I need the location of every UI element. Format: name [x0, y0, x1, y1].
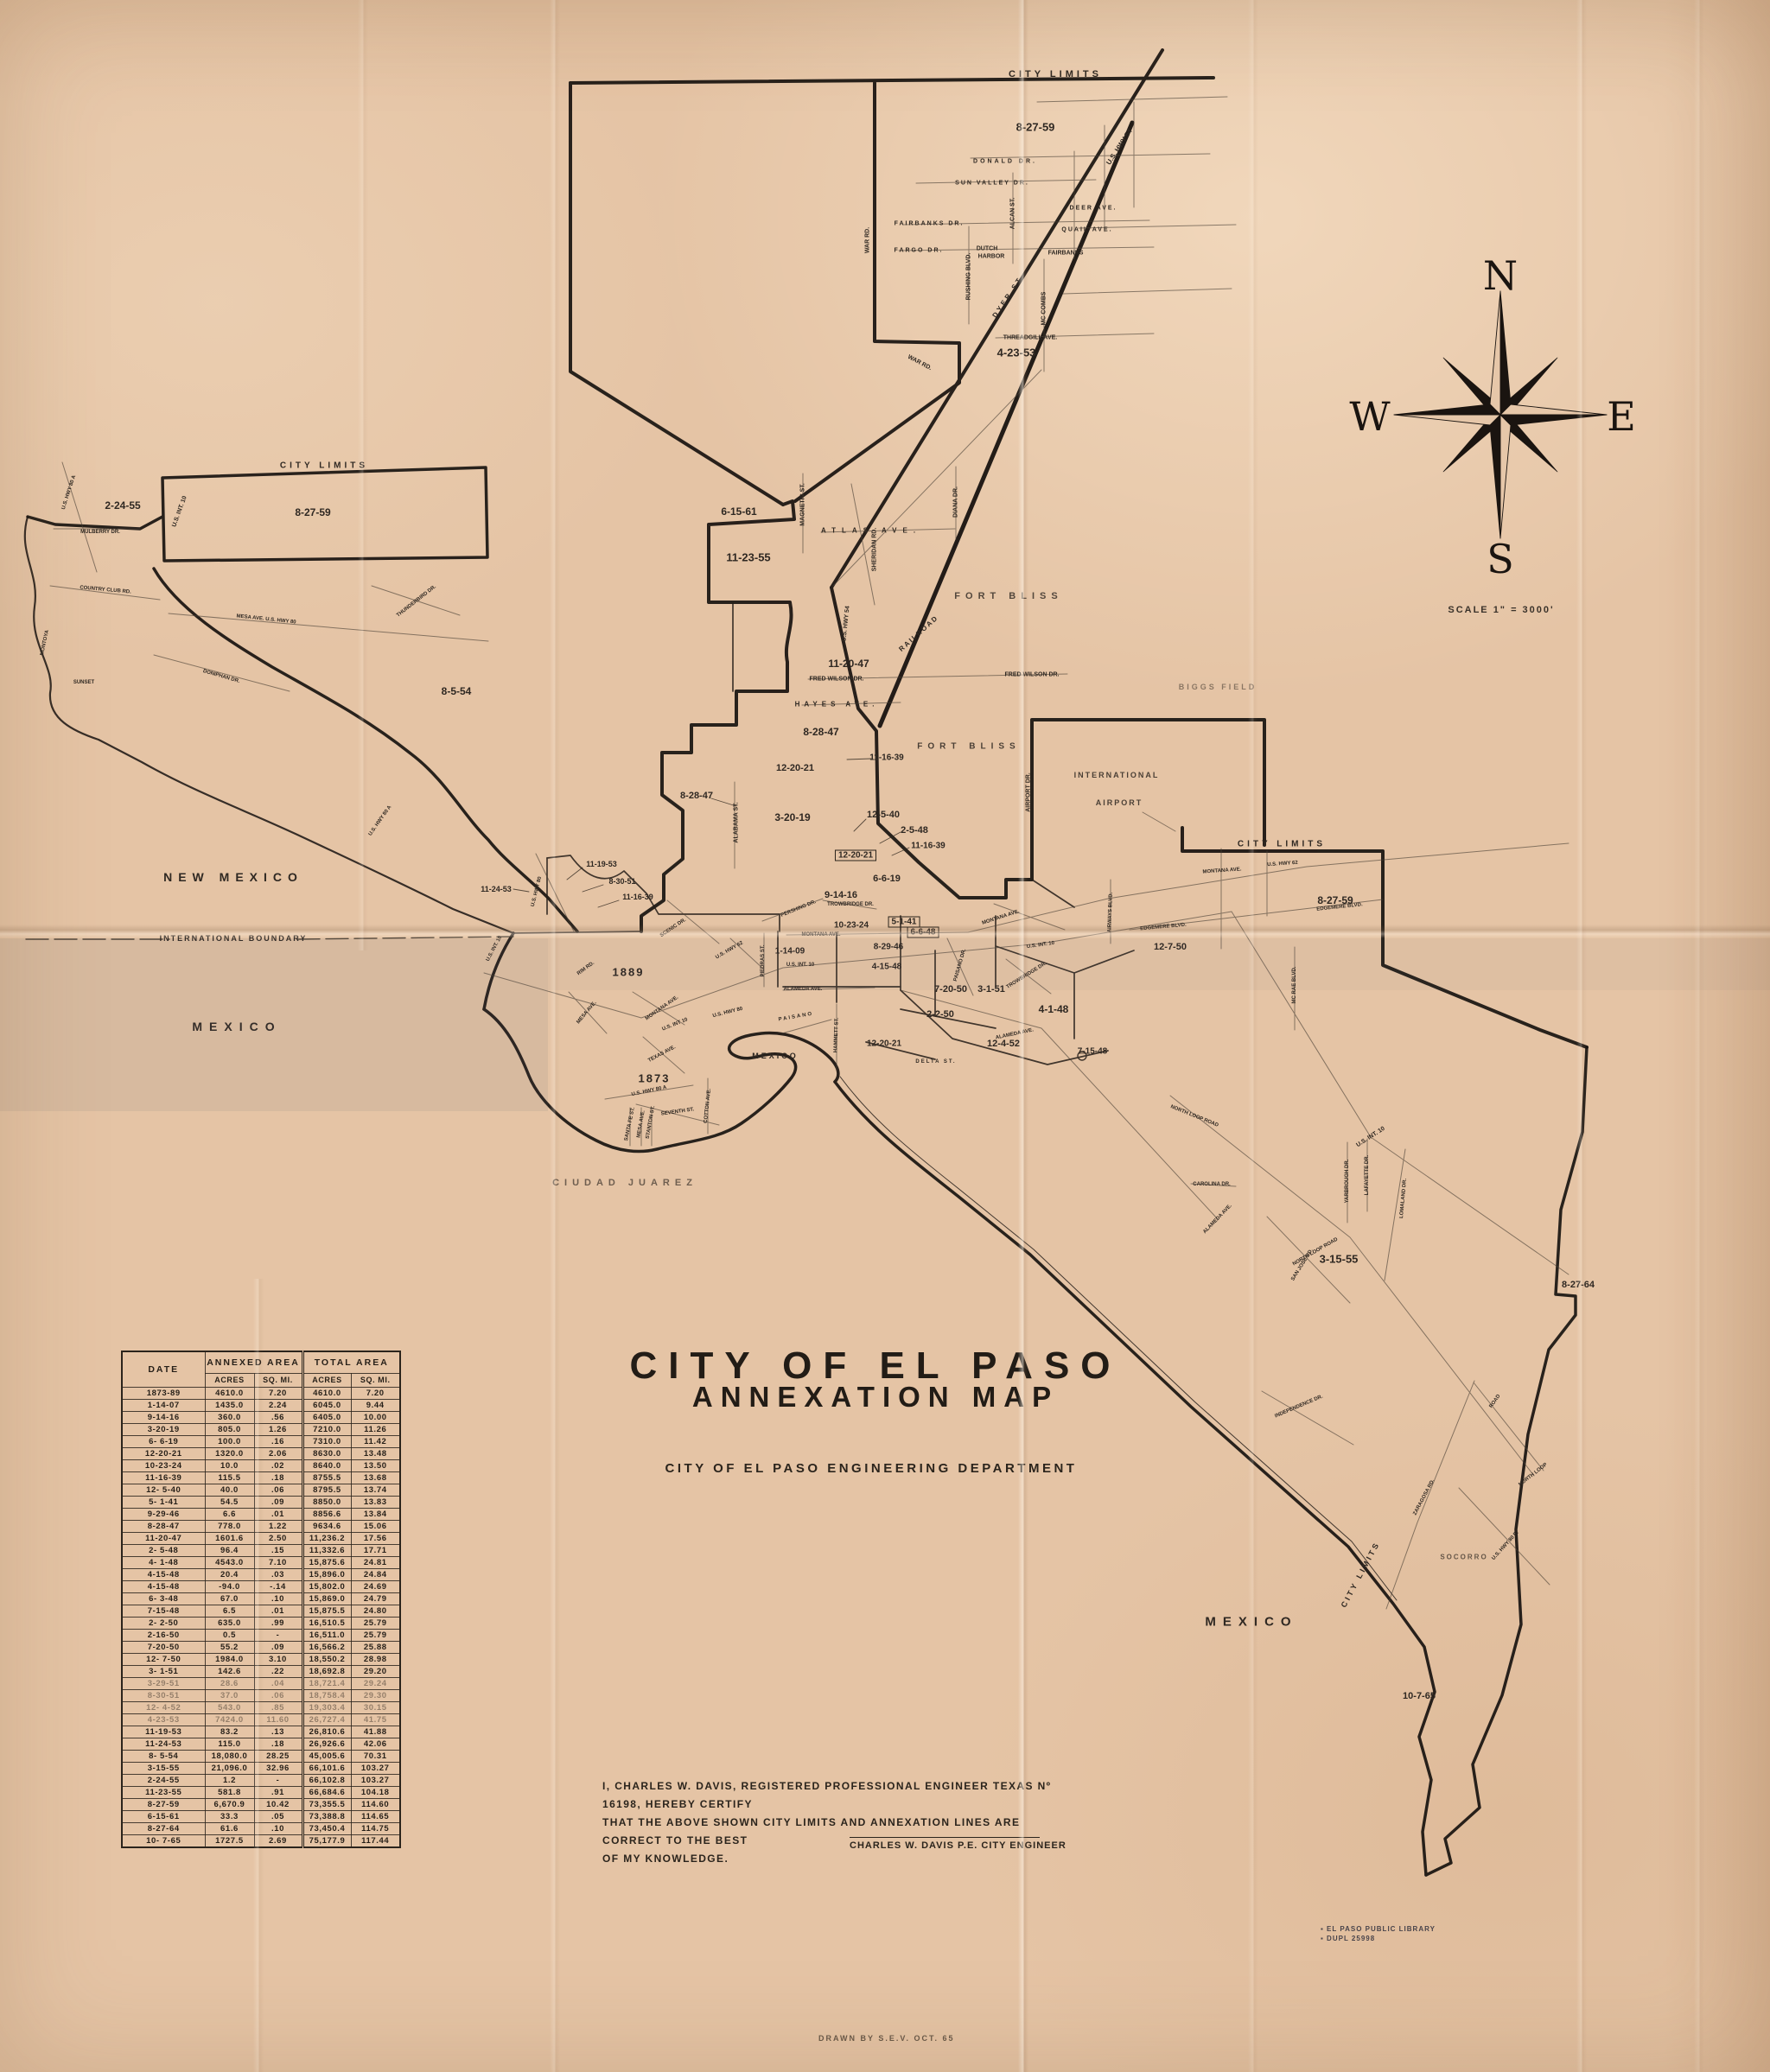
- map-label: 11-19-53: [586, 860, 617, 868]
- table-cell: .99: [254, 1618, 302, 1630]
- table-cell: 96.4: [205, 1545, 254, 1557]
- department-line: CITY OF EL PASO ENGINEERING DEPARTMENT: [665, 1461, 1078, 1476]
- table-cell: 103.27: [351, 1775, 400, 1787]
- table-row: 8-27-6461.6.1073,450.4114.75: [122, 1823, 400, 1835]
- map-label: DONALD DR.: [973, 159, 1037, 165]
- table-row: 11-19-5383.2.1326,810.641.88: [122, 1726, 400, 1738]
- table-cell: 41.75: [351, 1714, 400, 1726]
- table-cell: .10: [254, 1823, 302, 1835]
- map-label: U.S. HWY 54: [841, 606, 850, 642]
- map-label: U.S. HWY 80: [531, 876, 543, 907]
- table-row: 9-14-16360.0.566405.010.00: [122, 1412, 400, 1424]
- table-row: 3-29-5128.6.0418,721.429.24: [122, 1678, 400, 1690]
- table-cell: 15,875.5: [302, 1605, 351, 1618]
- table-cell: 1727.5: [205, 1835, 254, 1848]
- table-cell: 15,875.6: [302, 1557, 351, 1569]
- map-label: RIM RD.: [576, 961, 595, 976]
- drawn-by-note: DRAWN BY S.E.V. OCT. 65: [818, 2034, 955, 2043]
- map-label: FRED WILSON DR.: [1005, 672, 1060, 678]
- map-label: 8-27-59: [1016, 121, 1055, 134]
- table-cell: 2.24: [254, 1400, 302, 1412]
- table-cell: 15.06: [351, 1521, 400, 1533]
- map-label: PAISANO: [778, 1011, 813, 1022]
- table-cell: .05: [254, 1811, 302, 1823]
- table-cell: 11.60: [254, 1714, 302, 1726]
- map-label: SUN VALLEY DR.: [955, 181, 1029, 187]
- map-label: 8-30-51: [608, 877, 635, 886]
- map-label: THUNDERBIRD DR.: [396, 584, 437, 618]
- table-row: 2-24-551.2-66,102.8103.27: [122, 1775, 400, 1787]
- table-cell: 9.44: [351, 1400, 400, 1412]
- table-row: 12- 7-501984.03.1018,550.228.98: [122, 1654, 400, 1666]
- table-cell: 4610.0: [205, 1388, 254, 1400]
- table-cell: 11,332.6: [302, 1545, 351, 1557]
- table-cell: 100.0: [205, 1436, 254, 1448]
- table-cell: 24.79: [351, 1593, 400, 1605]
- map-label: WAR RD.: [907, 354, 933, 372]
- table-cell: 1873-89: [122, 1388, 205, 1400]
- table-cell: 142.6: [205, 1666, 254, 1678]
- map-label: 11-20-47: [828, 658, 869, 670]
- table-cell: 10.42: [254, 1799, 302, 1811]
- map-label: CITY LIMITS: [1238, 840, 1326, 849]
- table-cell: 1.22: [254, 1521, 302, 1533]
- table-cell: 66,101.6: [302, 1763, 351, 1775]
- library-stamp-line: ▪ EL PASO PUBLIC LIBRARY: [1321, 1924, 1436, 1934]
- table-row: 6- 3-4867.0.1015,869.024.79: [122, 1593, 400, 1605]
- table-cell: 6405.0: [302, 1412, 351, 1424]
- table-cell: 19,303.4: [302, 1702, 351, 1714]
- table-cell: 45,005.6: [302, 1751, 351, 1763]
- map-label: U.S. INT. 10: [1027, 941, 1055, 950]
- table-cell: 13.48: [351, 1448, 400, 1460]
- table-cell: 115.0: [205, 1738, 254, 1751]
- map-label: 10-23-24: [834, 921, 869, 931]
- col-header-acres-total: ACRES: [302, 1374, 351, 1388]
- col-header-total: TOTAL AREA: [302, 1351, 400, 1374]
- table-row: 1873-894610.07.204610.07.20: [122, 1388, 400, 1400]
- map-label: NORTH LOOP: [1518, 1462, 1548, 1487]
- map-label: ALAMEDA AVE.: [784, 987, 823, 992]
- map-label: 12-7-50: [1154, 942, 1187, 952]
- table-cell: 3-29-51: [122, 1678, 205, 1690]
- map-label: ZARAGOSA RD.: [1413, 1478, 1436, 1516]
- map-label: 6-6-19: [873, 874, 901, 884]
- map-label: MONTANA AVE.: [1202, 867, 1241, 874]
- table-cell: .56: [254, 1412, 302, 1424]
- table-cell: 12- 4-52: [122, 1702, 205, 1714]
- map-label: MONTOYA: [40, 630, 50, 657]
- table-cell: 24.81: [351, 1557, 400, 1569]
- table-cell: 12-20-21: [122, 1448, 205, 1460]
- table-cell: 18,550.2: [302, 1654, 351, 1666]
- map-label: 6-6-48: [907, 927, 939, 938]
- table-cell: 24.80: [351, 1605, 400, 1618]
- table-cell: 12- 7-50: [122, 1654, 205, 1666]
- table-row: 1-14-071435.02.246045.09.44: [122, 1400, 400, 1412]
- map-label: MONTANA AVE.: [802, 932, 841, 937]
- table-cell: .09: [254, 1642, 302, 1654]
- table-cell: 18,080.0: [205, 1751, 254, 1763]
- map-label: WAR RD.: [865, 227, 871, 253]
- table-cell: 6-15-61: [122, 1811, 205, 1823]
- table-cell: 8-27-59: [122, 1799, 205, 1811]
- map-label: ALABAMA ST.: [734, 802, 740, 842]
- map-label: LOMALAND DR.: [1399, 1179, 1408, 1219]
- map-label: U.S. INT. 10: [486, 935, 503, 962]
- map-label: 3-1-51: [977, 984, 1005, 995]
- table-cell: 4- 1-48: [122, 1557, 205, 1569]
- table-cell: 2.69: [254, 1835, 302, 1848]
- map-label: SANTA FE ST.: [624, 1107, 636, 1141]
- map-label: FRED WILSON DR.: [810, 677, 864, 683]
- map-label: MONTANA AVE.: [645, 995, 679, 1022]
- table-cell: -94.0: [205, 1581, 254, 1593]
- table-cell: 13.74: [351, 1484, 400, 1497]
- table-cell: 11.42: [351, 1436, 400, 1448]
- table-cell: 778.0: [205, 1521, 254, 1533]
- table-cell: 1-14-07: [122, 1400, 205, 1412]
- table-cell: 1984.0: [205, 1654, 254, 1666]
- map-label: U.S. HWY 80 A: [631, 1085, 667, 1097]
- map-label: 11-24-53: [481, 885, 512, 893]
- table-cell: 33.3: [205, 1811, 254, 1823]
- table-cell: 26,810.6: [302, 1726, 351, 1738]
- map-label: DIANA DR.: [953, 486, 959, 518]
- map-label: BIGGS FIELD: [1179, 683, 1257, 691]
- table-cell: 13.84: [351, 1509, 400, 1521]
- table-cell: 28.6: [205, 1678, 254, 1690]
- map-label: INTERNATIONAL: [1074, 771, 1160, 779]
- table-cell: 29.24: [351, 1678, 400, 1690]
- map-label: 11-23-55: [726, 551, 770, 564]
- map-label: INDEPENDENCE DR.: [1274, 1395, 1323, 1420]
- map-label: 8-29-46: [874, 943, 903, 952]
- table-cell: 4543.0: [205, 1557, 254, 1569]
- col-header-sqmi: SQ. MI.: [254, 1374, 302, 1388]
- table-cell: 3-20-19: [122, 1424, 205, 1436]
- table-cell: 7.10: [254, 1557, 302, 1569]
- table-row: 5- 1-4154.5.098850.013.83: [122, 1497, 400, 1509]
- map-label: U.S. HWY 54: [1105, 128, 1133, 167]
- map-label: U.S. INT. 10: [171, 495, 188, 528]
- map-label: AIRPORT DR.: [1026, 772, 1032, 812]
- map-label: U.S. INT. 10: [786, 963, 814, 968]
- map-label: 12-20-21: [867, 1039, 901, 1049]
- map-label: MESA AVE.: [636, 1110, 646, 1139]
- map-label: MEXICO: [752, 1052, 799, 1060]
- map-label: 1-14-09: [775, 947, 805, 957]
- table-cell: 40.0: [205, 1484, 254, 1497]
- map-label: 3-15-55: [1320, 1253, 1359, 1266]
- table-row: 2- 2-50635.0.9916,510.525.79: [122, 1618, 400, 1630]
- map-label: AIRPORT: [1096, 798, 1143, 807]
- table-cell: 28.98: [351, 1654, 400, 1666]
- map-label: 8-27-64: [1562, 1280, 1595, 1290]
- table-cell: 3- 1-51: [122, 1666, 205, 1678]
- table-row: 8- 5-5418,080.028.2545,005.670.31: [122, 1751, 400, 1763]
- map-label: DONIPHAN DR.: [202, 669, 240, 684]
- map-label: FAIRBANKS DR.: [895, 221, 965, 227]
- table-cell: 117.44: [351, 1835, 400, 1848]
- table-cell: 8850.0: [302, 1497, 351, 1509]
- map-label: DELTA ST.: [915, 1059, 956, 1065]
- table-cell: 4-15-48: [122, 1581, 205, 1593]
- map-label: EDGEMERE BLVD.: [1140, 923, 1187, 932]
- map-label: HAYES AVE.: [795, 701, 879, 709]
- map-label: FORT BLISS: [917, 742, 1020, 752]
- table-cell: 29.30: [351, 1690, 400, 1702]
- table-cell: -.14: [254, 1581, 302, 1593]
- table-row: 2-16-500.5-16,511.025.79: [122, 1630, 400, 1642]
- table-cell: .01: [254, 1605, 302, 1618]
- table-cell: 42.06: [351, 1738, 400, 1751]
- table-row: 8-28-47778.01.229634.615.06: [122, 1521, 400, 1533]
- table-cell: 26,727.4: [302, 1714, 351, 1726]
- table-cell: 104.18: [351, 1787, 400, 1799]
- table-cell: 70.31: [351, 1751, 400, 1763]
- table-cell: 2.50: [254, 1533, 302, 1545]
- map-label: HARBOR: [978, 254, 1005, 260]
- table-row: 7-15-486.5.0115,875.524.80: [122, 1605, 400, 1618]
- table-cell: 55.2: [205, 1642, 254, 1654]
- map-label: 10-7-65: [1403, 1691, 1436, 1701]
- table-row: 3- 1-51142.6.2218,692.829.20: [122, 1666, 400, 1678]
- map-label: 8-28-47: [680, 791, 713, 801]
- map-label: TROWBRIDGE DR.: [827, 902, 874, 907]
- table-cell: 1435.0: [205, 1400, 254, 1412]
- table-cell: 6- 3-48: [122, 1593, 205, 1605]
- table-cell: 1.26: [254, 1424, 302, 1436]
- map-label: MEXICO: [1205, 1615, 1297, 1630]
- map-label: U.S. HWY 80 E.: [1491, 1530, 1519, 1561]
- table-cell: .03: [254, 1569, 302, 1581]
- map-sheet: N S W E CITY LIMITS8-27-59U.S. HWY 54DON…: [0, 0, 1770, 2072]
- map-label: 12-20-21: [776, 763, 814, 773]
- table-cell: 37.0: [205, 1690, 254, 1702]
- map-label: HAMMETT ST.: [833, 1018, 839, 1053]
- table-cell: 4-23-53: [122, 1714, 205, 1726]
- table-cell: 2.06: [254, 1448, 302, 1460]
- table-cell: .09: [254, 1497, 302, 1509]
- table-cell: 13.68: [351, 1472, 400, 1484]
- table-cell: 10.0: [205, 1460, 254, 1472]
- map-label: SEVENTH ST.: [660, 1107, 694, 1116]
- table-row: 4-15-48-94.0-.1415,802.024.69: [122, 1581, 400, 1593]
- table-cell: 11,236.2: [302, 1533, 351, 1545]
- map-label: 4-15-48: [872, 963, 901, 972]
- table-cell: .04: [254, 1678, 302, 1690]
- map-label: 3-20-19: [774, 811, 810, 823]
- map-label: U.S. HWY 80: [712, 1007, 743, 1019]
- map-label: 11-16-39: [869, 753, 903, 763]
- table-cell: .06: [254, 1690, 302, 1702]
- table-row: 2- 5-4896.4.1511,332.617.71: [122, 1545, 400, 1557]
- map-label: 11-16-39: [622, 893, 653, 901]
- table-cell: .16: [254, 1436, 302, 1448]
- map-label: TEXAS AVE.: [647, 1045, 677, 1064]
- scale-label: SCALE 1" = 3000': [1448, 605, 1554, 615]
- table-cell: 9-14-16: [122, 1412, 205, 1424]
- col-header-date: DATE: [122, 1351, 205, 1388]
- map-label: MC RAE BLVD.: [1292, 967, 1297, 1004]
- table-cell: 6,670.9: [205, 1799, 254, 1811]
- map-label: DEER AVE.: [1070, 206, 1117, 212]
- map-label: 7-15-48: [1078, 1047, 1107, 1057]
- table-cell: 13.83: [351, 1497, 400, 1509]
- map-label: MEXICO: [192, 1020, 281, 1033]
- table-row: 10- 7-651727.52.6975,177.9117.44: [122, 1835, 400, 1848]
- table-row: 6- 6-19100.0.167310.011.42: [122, 1436, 400, 1448]
- table-cell: 6.5: [205, 1605, 254, 1618]
- table-row: 10-23-2410.0.028640.013.50: [122, 1460, 400, 1472]
- col-header-acres: ACRES: [205, 1374, 254, 1388]
- map-label: 12-4-52: [987, 1039, 1020, 1049]
- table-cell: 114.75: [351, 1823, 400, 1835]
- map-label: MESA AVE.: [576, 1001, 597, 1025]
- col-header-sqmi-total: SQ. MI.: [351, 1374, 400, 1388]
- table-cell: 8-30-51: [122, 1690, 205, 1702]
- map-label: CIUDAD JUAREZ: [552, 1178, 697, 1188]
- map-label: CITY LIMITS: [1009, 69, 1102, 79]
- annexation-table: DATE ANNEXED AREA TOTAL AREA ACRES SQ. M…: [121, 1351, 401, 1848]
- table-cell: 9-29-46: [122, 1509, 205, 1521]
- table-cell: 83.2: [205, 1726, 254, 1738]
- map-label: 2-2-50: [926, 1009, 954, 1020]
- table-cell: .15: [254, 1545, 302, 1557]
- map-label: U.S. HWY 62: [715, 941, 744, 961]
- table-cell: -: [254, 1775, 302, 1787]
- table-cell: 3-15-55: [122, 1763, 205, 1775]
- table-row: 8-30-5137.0.0618,758.429.30: [122, 1690, 400, 1702]
- table-row: 7-20-5055.2.0916,566.225.88: [122, 1642, 400, 1654]
- table-cell: 73,450.4: [302, 1823, 351, 1835]
- map-label: 9-14-16: [825, 890, 857, 900]
- table-cell: 103.27: [351, 1763, 400, 1775]
- map-label: MESA AVE. U.S. HWY 80: [236, 613, 296, 625]
- certification-line: OF MY KNOWLEDGE.: [602, 1850, 1052, 1868]
- map-label: SCENIC DR.: [659, 918, 687, 938]
- signature-line: CHARLES W. DAVIS P.E. CITY ENGINEER: [850, 1837, 1040, 1851]
- map-label: 12-5-40: [867, 810, 900, 820]
- table-cell: 73,355.5: [302, 1799, 351, 1811]
- table-row: 3-15-5521,096.032.9666,101.6103.27: [122, 1763, 400, 1775]
- table-cell: 24.84: [351, 1569, 400, 1581]
- map-label: MULBERRY DR.: [80, 530, 120, 535]
- table-row: 11-16-39115.5.188755.513.68: [122, 1472, 400, 1484]
- map-label: FAIRBANKS: [1048, 251, 1084, 257]
- table-row: 6-15-6133.3.0573,388.8114.65: [122, 1811, 400, 1823]
- col-header-annexed: ANNEXED AREA: [205, 1351, 302, 1374]
- table-cell: 11-16-39: [122, 1472, 205, 1484]
- table-cell: .85: [254, 1702, 302, 1714]
- map-label: 11-16-39: [911, 842, 945, 851]
- table-cell: 25.79: [351, 1630, 400, 1642]
- map-label: 8-5-54: [442, 685, 472, 697]
- table-cell: .13: [254, 1726, 302, 1738]
- map-label: TROWBRIDGE DR.: [1006, 961, 1048, 990]
- table-cell: 15,802.0: [302, 1581, 351, 1593]
- map-label: SHERIDAN RD.: [872, 528, 878, 572]
- table-row: 12- 4-52543.0.8519,303.430.15: [122, 1702, 400, 1714]
- table-cell: 10.00: [351, 1412, 400, 1424]
- table-cell: 16,566.2: [302, 1642, 351, 1654]
- map-label: NEW MEXICO: [163, 870, 303, 884]
- table-cell: 10- 7-65: [122, 1835, 205, 1848]
- map-label: 2-5-48: [901, 825, 928, 836]
- table-cell: .18: [254, 1472, 302, 1484]
- map-label: MONTANA AVE.: [982, 909, 1021, 926]
- table-cell: 17.56: [351, 1533, 400, 1545]
- table-cell: 9634.6: [302, 1521, 351, 1533]
- map-label: RAILROAD: [897, 613, 939, 653]
- table-cell: 73,388.8: [302, 1811, 351, 1823]
- map-label: MAGNETIC ST.: [800, 483, 806, 525]
- map-label: 6-15-61: [721, 505, 756, 518]
- table-cell: .10: [254, 1593, 302, 1605]
- table-cell: 15,869.0: [302, 1593, 351, 1605]
- table-cell: 805.0: [205, 1424, 254, 1436]
- table-cell: 6- 6-19: [122, 1436, 205, 1448]
- table-row: 12-20-211320.02.068630.013.48: [122, 1448, 400, 1460]
- map-label: 2-24-55: [105, 499, 140, 512]
- map-label: DYER ST.: [990, 272, 1026, 320]
- map-label: COUNTRY CLUB RD.: [80, 585, 131, 594]
- map-label: ROAD: [1488, 1394, 1501, 1409]
- map-label: PERSHING DR.: [780, 899, 817, 918]
- table-cell: 41.88: [351, 1726, 400, 1738]
- table-cell: 2- 5-48: [122, 1545, 205, 1557]
- map-label: THREADGILL AVE.: [1003, 335, 1057, 341]
- map-label: 7-20-50: [934, 984, 967, 995]
- map-label: CAROLINA DR.: [1193, 1182, 1230, 1187]
- table-cell: 360.0: [205, 1412, 254, 1424]
- table-cell: 25.88: [351, 1642, 400, 1654]
- table-cell: 8-27-64: [122, 1823, 205, 1835]
- map-label: YARBROUGH DR.: [1345, 1160, 1350, 1204]
- table-cell: 25.79: [351, 1618, 400, 1630]
- table-cell: 10-23-24: [122, 1460, 205, 1472]
- table-cell: 26,926.6: [302, 1738, 351, 1751]
- table-cell: -: [254, 1630, 302, 1642]
- table-cell: 12- 5-40: [122, 1484, 205, 1497]
- table-cell: 114.65: [351, 1811, 400, 1823]
- table-cell: 24.69: [351, 1581, 400, 1593]
- table-cell: 6.6: [205, 1509, 254, 1521]
- table-row: 12- 5-4040.0.068795.513.74: [122, 1484, 400, 1497]
- table-row: 8-27-596,670.910.4273,355.5114.60: [122, 1799, 400, 1811]
- table-cell: .91: [254, 1787, 302, 1799]
- table-cell: 8- 5-54: [122, 1751, 205, 1763]
- annexation-table-body: 1873-894610.07.204610.07.201-14-071435.0…: [122, 1388, 400, 1848]
- map-label: U.S. HWY 62: [1267, 861, 1298, 868]
- table-cell: 2-16-50: [122, 1630, 205, 1642]
- map-label: RUSHING BLVD.: [966, 253, 972, 301]
- map-label: DUTCH: [977, 246, 998, 252]
- table-row: 4-23-537424.011.6026,727.441.75: [122, 1714, 400, 1726]
- table-cell: 8755.5: [302, 1472, 351, 1484]
- table-cell: 15,896.0: [302, 1569, 351, 1581]
- map-label: SUNSET: [73, 680, 94, 685]
- table-cell: 11-23-55: [122, 1787, 205, 1799]
- table-cell: 8856.6: [302, 1509, 351, 1521]
- table-cell: 7-15-48: [122, 1605, 205, 1618]
- table-cell: 30.15: [351, 1702, 400, 1714]
- map-label: 8-28-47: [803, 726, 838, 738]
- map-label: PAISANO DR.: [953, 948, 967, 982]
- table-cell: 7.20: [351, 1388, 400, 1400]
- map-label: NORTH LOOP ROAD: [1169, 1104, 1219, 1128]
